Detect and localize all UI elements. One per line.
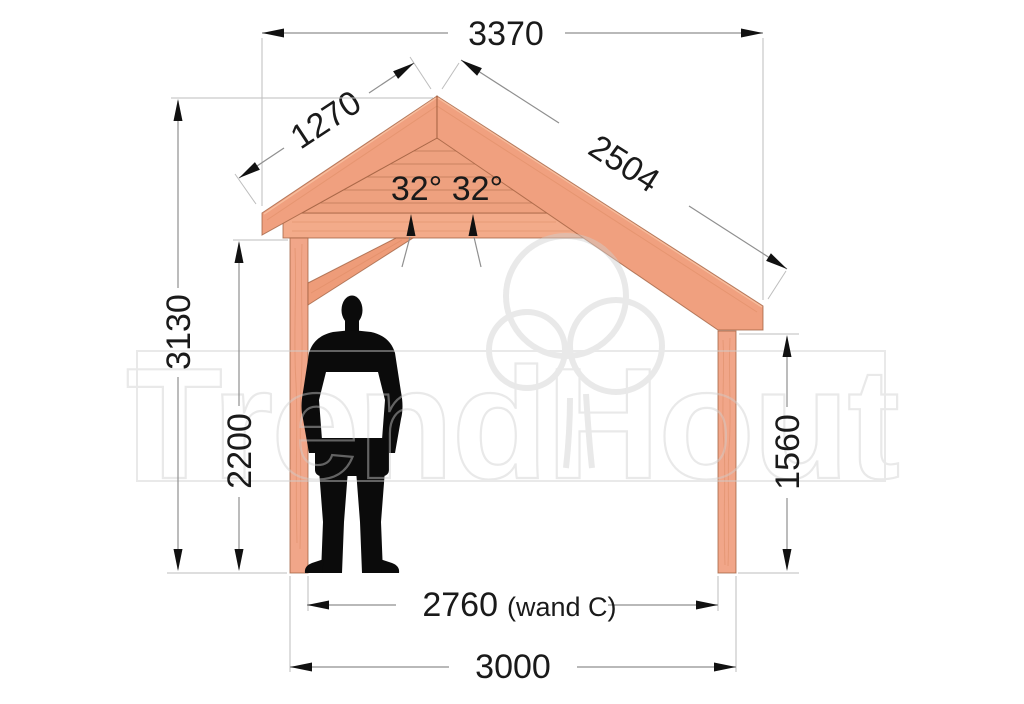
arrowhead-left xyxy=(307,601,329,610)
arrowhead-left xyxy=(290,663,312,672)
brace-grain xyxy=(311,240,402,293)
dimension-inner-width: 2760 (wand C) xyxy=(307,576,718,624)
dimension-label-inner-width-note: (wand C) xyxy=(507,592,617,622)
person-right-foot xyxy=(380,559,399,573)
arrowhead-upper xyxy=(461,60,482,76)
arrowhead-lower xyxy=(239,162,260,178)
dimension-label-outer-width: 3000 xyxy=(475,648,551,686)
extension-line xyxy=(410,57,431,89)
arrowhead-right xyxy=(714,663,736,672)
diagonal-brace xyxy=(308,238,413,305)
dimension-label-passage-height: 2200 xyxy=(221,413,259,489)
dimension-label-right-post-height: 1560 xyxy=(769,414,807,490)
angle-leader-line xyxy=(474,237,481,267)
extension-line xyxy=(235,174,256,204)
arrowhead-bottom xyxy=(235,549,244,571)
arrowhead-right xyxy=(741,29,763,38)
arrowhead-top xyxy=(235,241,244,263)
extension-line xyxy=(768,271,786,299)
dimension-label-total-height: 3130 xyxy=(160,294,198,370)
arrowhead-bottom xyxy=(174,549,183,571)
dimension-label-angles: 32° 32° xyxy=(391,170,503,208)
arrowhead-top xyxy=(174,99,183,121)
arrowhead-upper xyxy=(393,63,414,79)
dimension-label-left-roof: 1270 xyxy=(284,83,368,156)
dimension-label-inner-width: 2760 xyxy=(422,586,498,624)
technical-drawing-page: TrendHout 3370 1270 xyxy=(0,0,1024,704)
dimension-label-right-roof: 2504 xyxy=(582,128,666,201)
dimension-label-top-width: 3370 xyxy=(468,15,544,53)
extension-line xyxy=(442,63,459,89)
arrowhead-bottom xyxy=(783,549,792,571)
arrowhead-right xyxy=(696,601,718,610)
arrowhead-lower xyxy=(766,253,787,269)
arrowhead-left xyxy=(262,29,284,38)
veranda-drawing-canvas: TrendHout 3370 1270 xyxy=(0,0,1024,704)
